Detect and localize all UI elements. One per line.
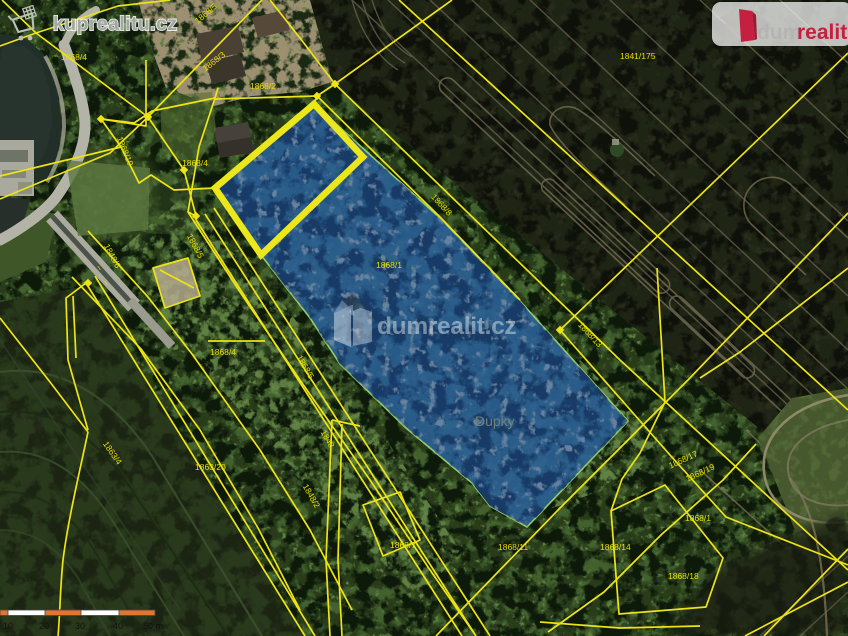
svg-text:40: 40 <box>113 621 123 631</box>
svg-text:50 m: 50 m <box>143 621 163 631</box>
svg-text:dum: dum <box>757 21 801 44</box>
svg-text:30: 30 <box>75 621 85 631</box>
svg-text:1868/4: 1868/4 <box>182 158 208 168</box>
svg-text:20: 20 <box>39 621 49 631</box>
svg-text:Dupky: Dupky <box>475 413 515 429</box>
svg-text:kuprealitu.cz: kuprealitu.cz <box>53 13 177 35</box>
svg-text:1868/14: 1868/14 <box>600 542 631 552</box>
svg-text:1868/4: 1868/4 <box>210 347 236 357</box>
svg-text:1868/1: 1868/1 <box>685 513 711 523</box>
svg-text:1868/11: 1868/11 <box>498 542 528 552</box>
svg-text:1863/20: 1863/20 <box>195 462 226 472</box>
svg-text:dumrealit.cz: dumrealit.cz <box>377 313 516 340</box>
svg-text:1868/2: 1868/2 <box>250 81 276 91</box>
svg-text:1868/18: 1868/18 <box>668 571 699 581</box>
svg-text:1868/7: 1868/7 <box>390 540 416 550</box>
svg-text:1868/1: 1868/1 <box>376 260 402 270</box>
svg-text:1841/175: 1841/175 <box>620 51 656 61</box>
svg-text:realit: realit <box>797 21 847 44</box>
svg-text:10: 10 <box>3 621 13 631</box>
svg-text:1868/4: 1868/4 <box>61 52 87 62</box>
